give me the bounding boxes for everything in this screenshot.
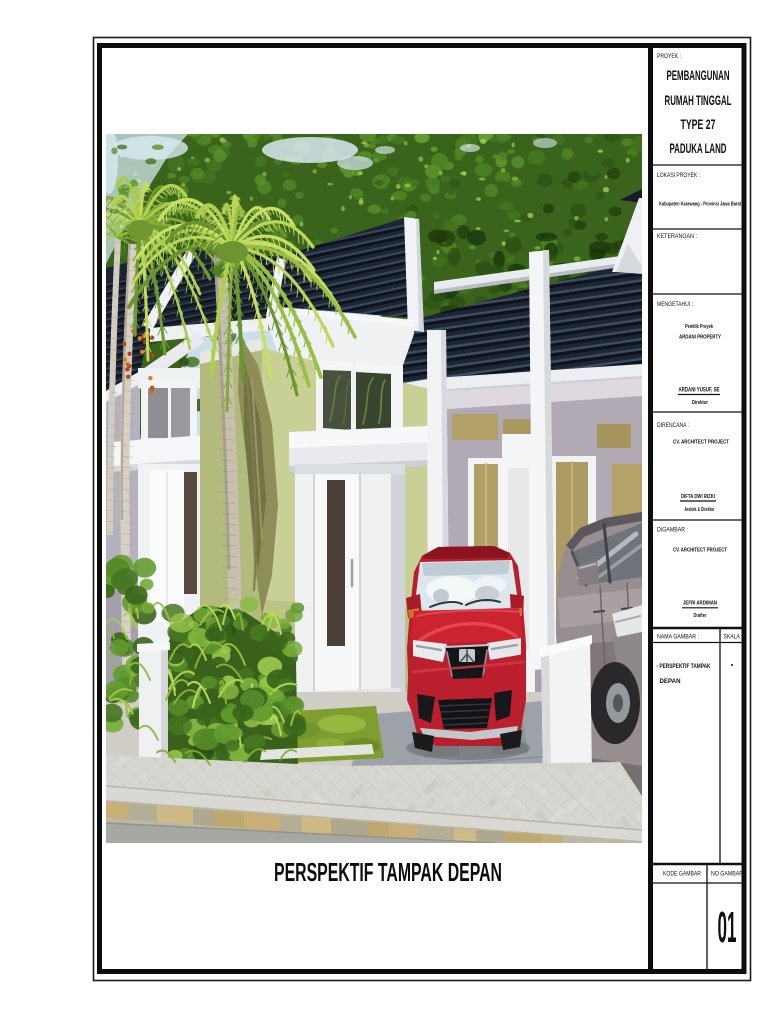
svg-text:NAMA GAMBAR :: NAMA GAMBAR : [657,634,699,641]
svg-text:PERSPEKTIF TAMPAK DEPAN: PERSPEKTIF TAMPAK DEPAN [274,857,502,887]
svg-text:KODE GAMBAR: KODE GAMBAR [663,871,701,878]
svg-text:KETERANGAN :: KETERANGAN : [657,233,697,240]
svg-text:- PERSPEKTIF TAMPAK: - PERSPEKTIF TAMPAK [657,664,712,670]
svg-text:ARDANI YUSUF, SE: ARDANI YUSUF, SE [679,388,720,394]
svg-text:CV. ARCHITECT PROJECT: CV. ARCHITECT PROJECT [673,548,727,554]
svg-text:DEPAN: DEPAN [660,679,681,685]
svg-text:PADUKA LAND: PADUKA LAND [670,140,727,156]
svg-text:RUMAH TINGGAL: RUMAH TINGGAL [665,92,732,108]
svg-text:SKALA :: SKALA : [724,634,743,641]
svg-text:DIRENCANA :: DIRENCANA : [657,422,689,429]
svg-text:CV. ARCHITECT PROJECT: CV. ARCHITECT PROJECT [673,440,730,446]
svg-text:DIGAMBAR :: DIGAMBAR : [657,527,688,534]
svg-text:Arsitek & Direktur: Arsitek & Direktur [685,507,716,513]
svg-text:NO GAMBAR: NO GAMBAR [711,871,743,878]
svg-text:Drafter: Drafter [694,613,708,619]
svg-text:ARDANI PROPERTY: ARDANI PROPERTY [679,335,721,341]
svg-text:01: 01 [718,903,737,952]
svg-text:Direktur: Direktur [692,400,709,406]
svg-text:TYPE 27: TYPE 27 [681,116,716,132]
svg-text:MENGETAHUI :: MENGETAHUI : [657,301,693,308]
svg-text:LOKASI PROYEK :: LOKASI PROYEK : [657,172,700,179]
svg-text:JEFRI ARDIMAN: JEFRI ARDIMAN [683,601,717,607]
svg-text:Kabupaten Karawang - Provinsi: Kabupaten Karawang - Provinsi Jawa Barat [659,202,741,208]
svg-text:Pemilik Proyek: Pemilik Proyek [685,324,714,330]
svg-text:DIFTA DWI RIZKI: DIFTA DWI RIZKI [681,494,715,500]
svg-text:PEMBANGUNAN: PEMBANGUNAN [667,67,730,83]
svg-text:PROYEK :: PROYEK : [657,53,681,60]
